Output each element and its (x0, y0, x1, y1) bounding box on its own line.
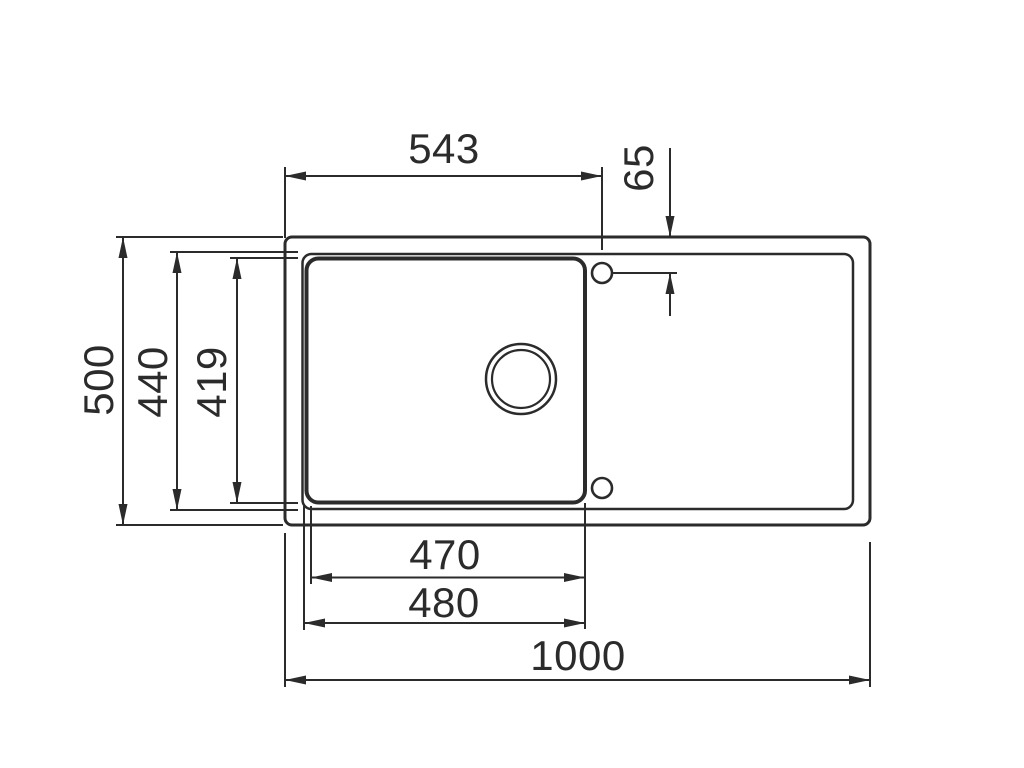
sink-outline-group (285, 237, 870, 525)
dim-label-500: 500 (75, 344, 122, 416)
drain-inner-circle (492, 350, 550, 408)
dim-label-480: 480 (408, 579, 480, 626)
dimension-labels-group: 543 65 500 440 419 470 480 1000 (75, 125, 662, 679)
dim-label-65: 65 (615, 144, 662, 192)
tap-hole-top (592, 263, 612, 283)
bowl-outline (307, 259, 586, 503)
dim-label-470: 470 (409, 531, 481, 578)
dim-label-1000: 1000 (530, 632, 625, 679)
tap-hole-bottom (592, 478, 612, 498)
dim-label-440: 440 (129, 346, 176, 418)
sink-technical-drawing: 543 65 500 440 419 470 480 1000 (0, 0, 1024, 768)
dim-label-419: 419 (188, 346, 235, 418)
sink-rim-inner-edge (303, 254, 854, 509)
arrowheads-group (119, 172, 871, 685)
sink-outer-edge (285, 237, 870, 525)
drain-outer-circle (486, 344, 556, 414)
dim-419-lines (230, 258, 298, 503)
dim-label-543: 543 (408, 125, 480, 172)
